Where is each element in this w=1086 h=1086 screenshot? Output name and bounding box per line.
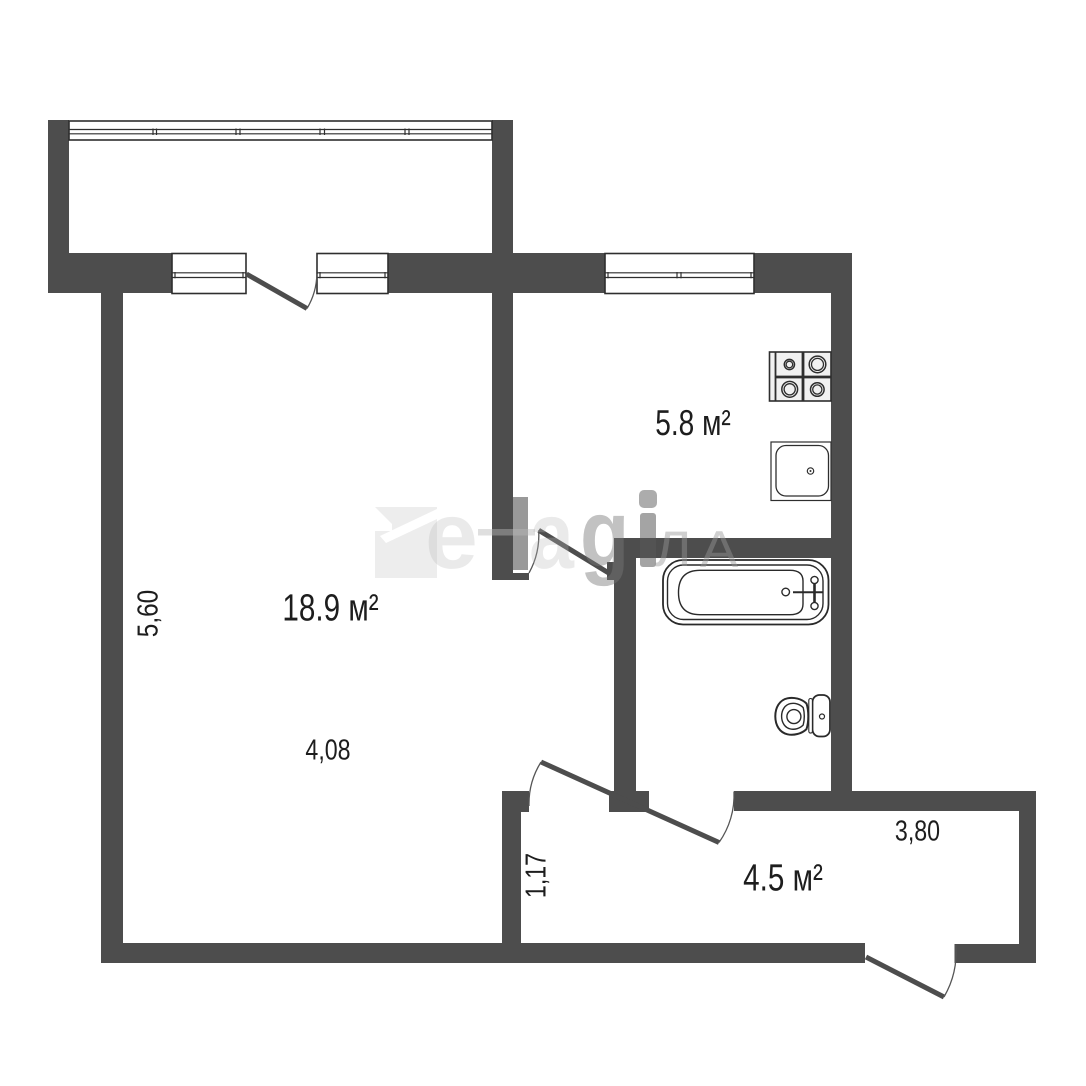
svg-text:e: e	[425, 483, 478, 589]
svg-text:g: g	[580, 481, 629, 587]
svg-text:4,08: 4,08	[305, 735, 350, 767]
svg-text:1,17: 1,17	[521, 853, 553, 898]
svg-text:5,60: 5,60	[133, 590, 165, 637]
svg-text:18.9 м²: 18.9 м²	[282, 588, 378, 630]
svg-text:Л: Л	[654, 521, 692, 577]
svg-text:4.5 м²: 4.5 м²	[743, 858, 823, 900]
svg-text:3,80: 3,80	[895, 816, 940, 848]
svg-text:А: А	[700, 521, 739, 579]
svg-text:a: a	[529, 483, 575, 589]
svg-text:5.8 м²: 5.8 м²	[655, 402, 731, 443]
